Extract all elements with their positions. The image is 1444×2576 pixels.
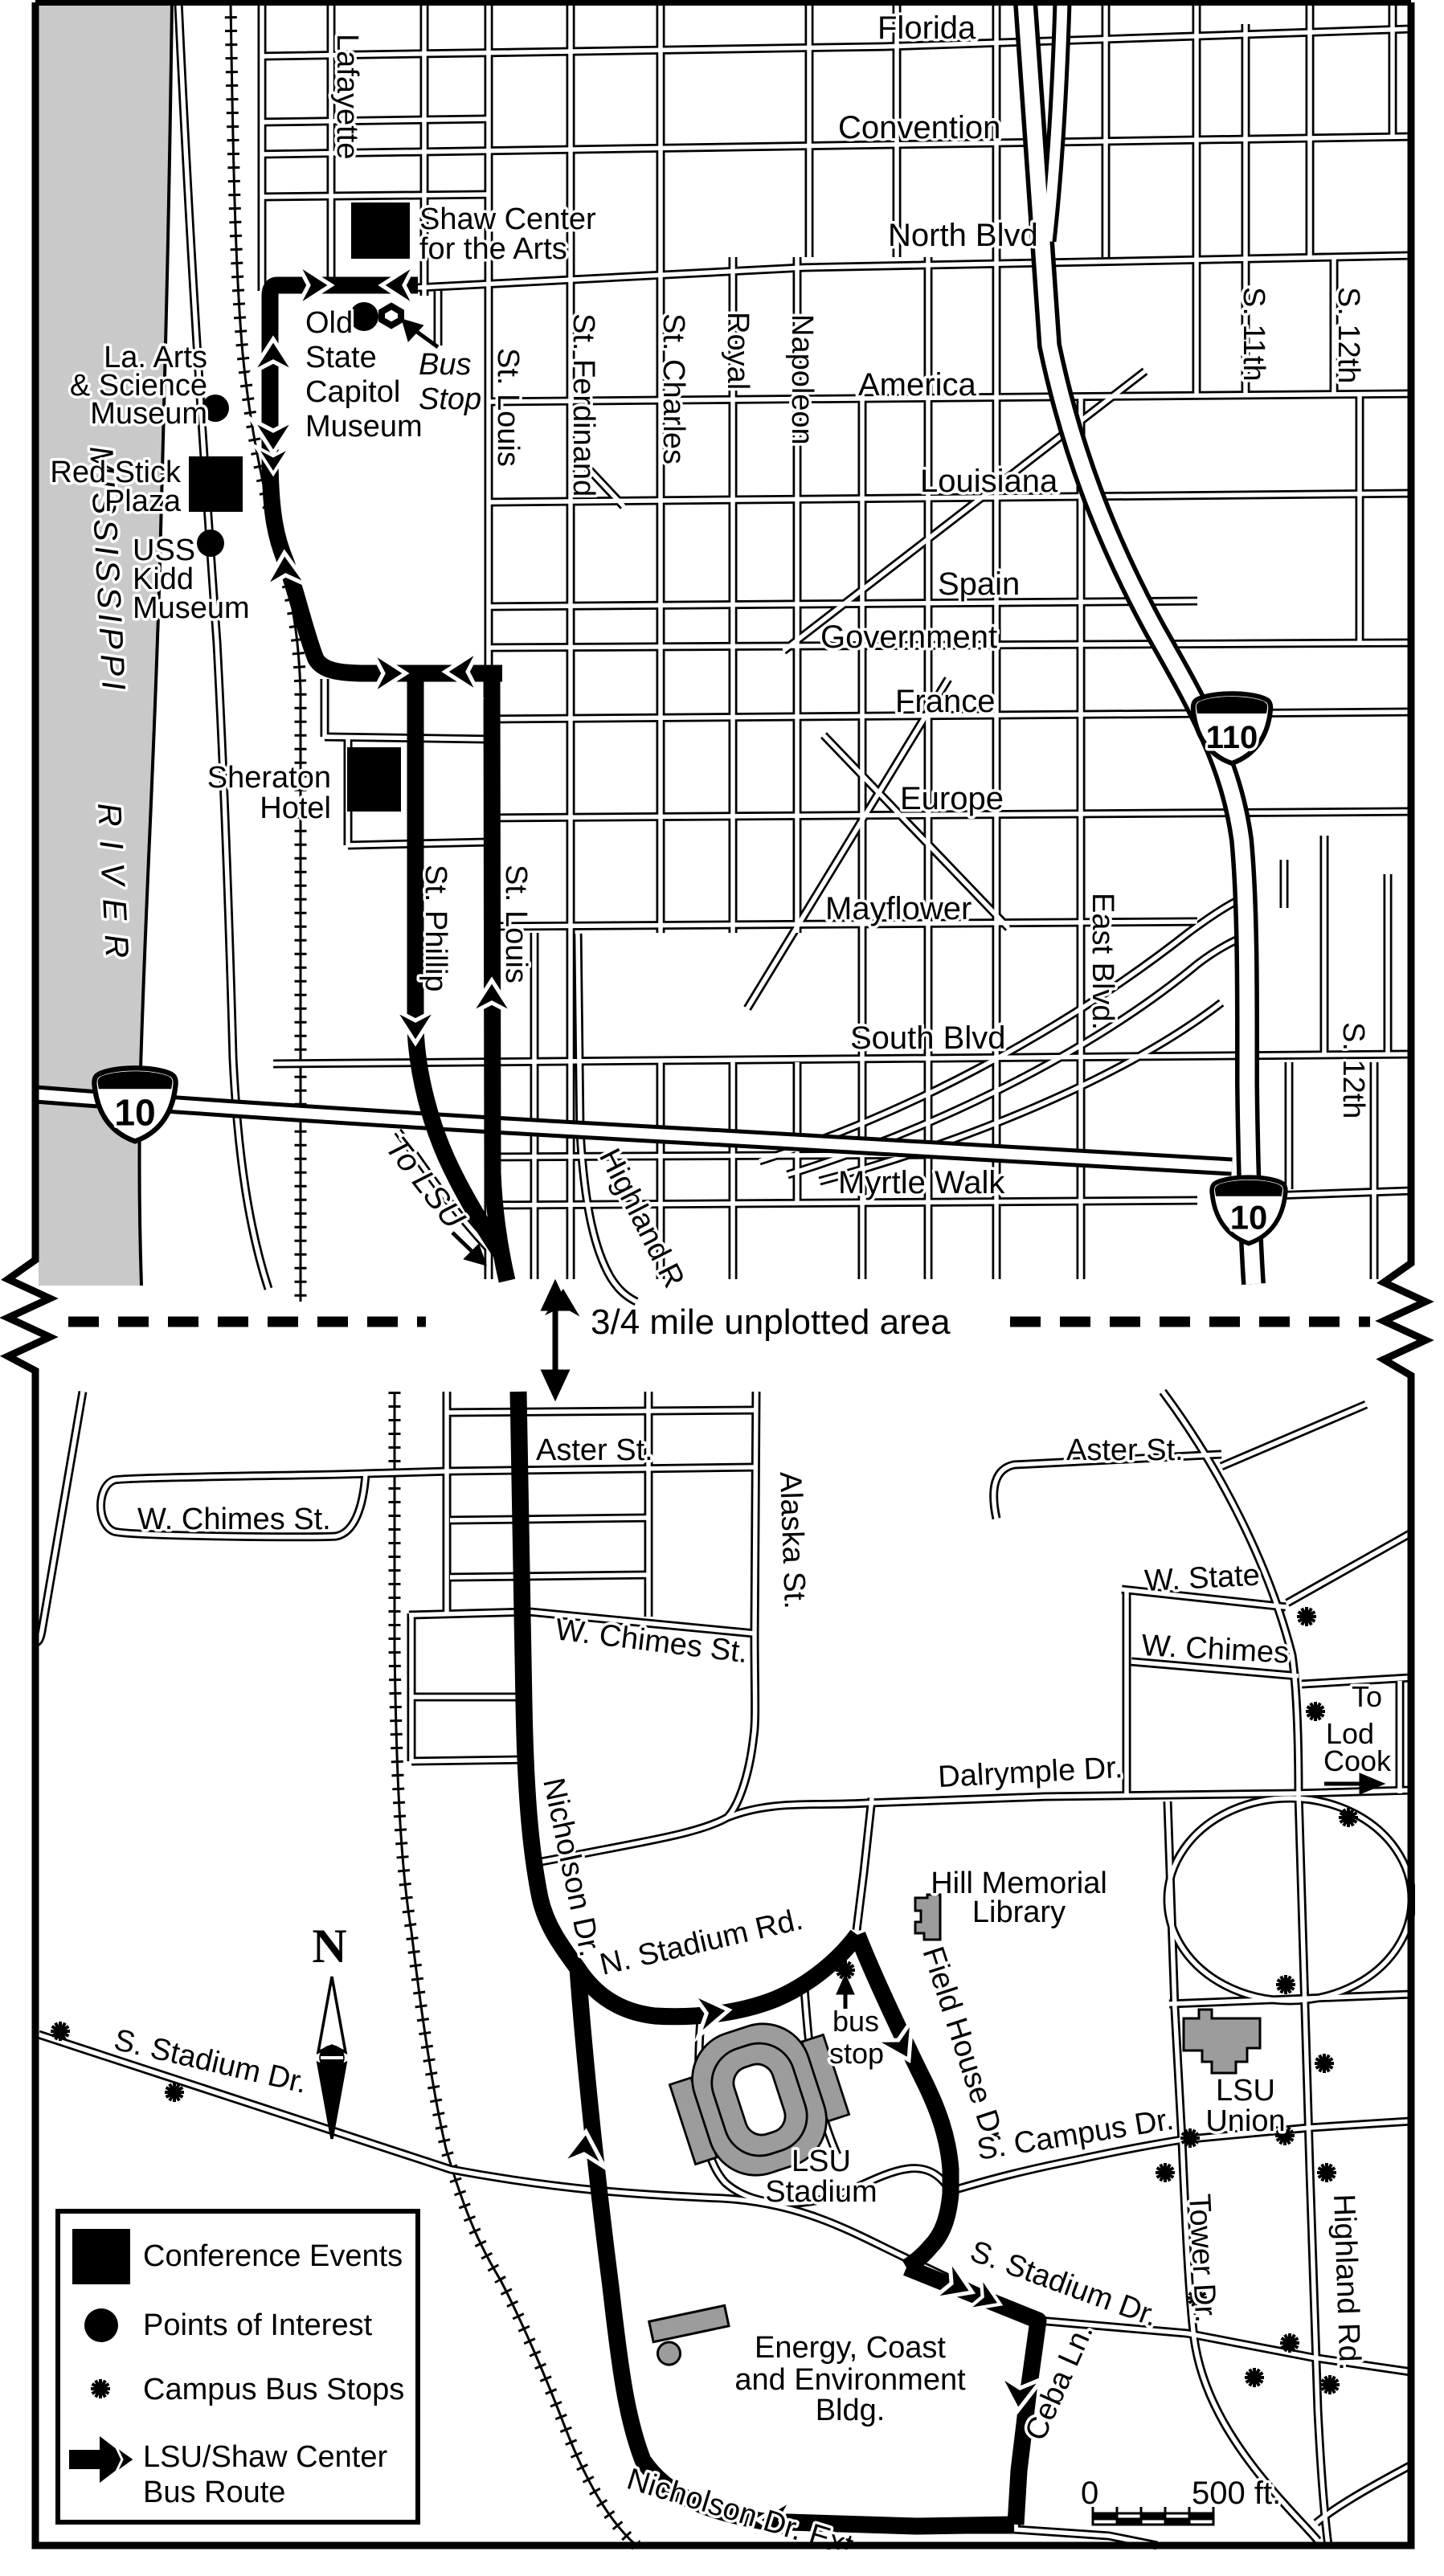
svg-text:Museum: Museum	[90, 397, 207, 431]
svg-text:Aster St.: Aster St.	[536, 1433, 653, 1467]
svg-text:Conference Events: Conference Events	[143, 2239, 403, 2273]
svg-text:St. Charles: St. Charles	[657, 313, 690, 464]
svg-text:500 ft.: 500 ft.	[1192, 2476, 1281, 2511]
svg-text:Government: Government	[820, 619, 997, 655]
svg-text:Napoleon: Napoleon	[785, 314, 819, 445]
svg-text:Shaw Center: Shaw Center	[419, 202, 596, 236]
svg-text:St. Louis: St. Louis	[491, 348, 525, 467]
svg-text:Stop: Stop	[419, 382, 481, 416]
svg-text:Museum: Museum	[133, 591, 250, 625]
svg-text:Spain: Spain	[938, 566, 1020, 602]
svg-text:Mayflower: Mayflower	[825, 891, 972, 926]
svg-text:North Blvd: North Blvd	[888, 218, 1038, 253]
svg-text:Sheraton: Sheraton	[207, 761, 331, 795]
svg-text:bus: bus	[832, 2005, 879, 2038]
svg-text:Lafayette: Lafayette	[330, 34, 364, 159]
svg-text:Royal: Royal	[721, 312, 755, 390]
svg-text:Capitol: Capitol	[305, 375, 400, 409]
svg-text:10: 10	[1230, 1199, 1268, 1237]
svg-text:State: State	[305, 341, 377, 374]
svg-text:France: France	[895, 684, 996, 719]
svg-text:0: 0	[1081, 2476, 1098, 2511]
svg-text:Energy, Coast: Energy, Coast	[755, 2331, 946, 2365]
svg-text:W. State: W. State	[1143, 1559, 1261, 1598]
svg-text:St. Louis: St. Louis	[499, 865, 533, 983]
svg-text:Bus Route: Bus Route	[143, 2476, 285, 2509]
svg-text:110: 110	[1206, 720, 1258, 755]
svg-text:N: N	[312, 1920, 346, 1973]
svg-text:Museum: Museum	[305, 410, 423, 444]
svg-text:Campus Bus Stops: Campus Bus Stops	[143, 2373, 404, 2406]
svg-text:Highland Rd.: Highland Rd.	[1327, 2194, 1367, 2371]
svg-text:Stadium: Stadium	[765, 2175, 877, 2209]
svg-text:Plaza: Plaza	[104, 485, 182, 518]
svg-text:Bus: Bus	[419, 348, 471, 382]
svg-text:Points of Interest: Points of Interest	[143, 2308, 373, 2342]
svg-text:and Environment: and Environment	[734, 2363, 966, 2397]
svg-text:America: America	[858, 367, 976, 403]
svg-text:S. 12th: S. 12th	[1336, 1022, 1370, 1118]
svg-text:LSU: LSU	[792, 2145, 851, 2178]
svg-text:3/4 mile unplotted area: 3/4 mile unplotted area	[591, 1302, 951, 1342]
svg-text:East Blvd.: East Blvd.	[1086, 893, 1119, 1030]
svg-text:Old: Old	[305, 306, 353, 340]
svg-text:Tower Dr.: Tower Dr.	[1182, 2193, 1222, 2323]
svg-text:Library: Library	[972, 1895, 1066, 1929]
svg-text:W. Chimes St.: W. Chimes St.	[137, 1503, 331, 1536]
svg-text:Convention: Convention	[838, 110, 1000, 145]
svg-text:S. 11th: S. 11th	[1237, 287, 1270, 382]
svg-text:Alaska St.: Alaska St.	[773, 1471, 812, 1609]
svg-text:Myrtle Walk: Myrtle Walk	[838, 1165, 1005, 1200]
svg-text:Bldg.: Bldg.	[816, 2394, 886, 2427]
svg-text:10: 10	[114, 1091, 155, 1133]
svg-text:stop: stop	[829, 2037, 884, 2070]
svg-text:Hotel: Hotel	[260, 791, 331, 825]
svg-text:Aster St.: Aster St.	[1066, 1433, 1184, 1467]
svg-text:for the Arts: for the Arts	[419, 232, 567, 266]
svg-text:Louisiana: Louisiana	[920, 464, 1058, 499]
svg-text:Cook: Cook	[1323, 1744, 1392, 1777]
svg-text:LSU: LSU	[1216, 2074, 1275, 2108]
svg-text:Union: Union	[1205, 2104, 1285, 2138]
svg-text:Europe: Europe	[900, 781, 1004, 816]
svg-text:South Blvd: South Blvd	[850, 1020, 1005, 1056]
svg-text:St. Phillip: St. Phillip	[419, 865, 452, 992]
svg-text:LSU/Shaw Center: LSU/Shaw Center	[143, 2440, 387, 2474]
svg-text:Florida: Florida	[877, 10, 976, 46]
svg-text:To: To	[1352, 1680, 1382, 1713]
svg-text:S. 12th: S. 12th	[1332, 287, 1365, 383]
svg-text:St. Ferdinand: St. Ferdinand	[567, 313, 600, 497]
